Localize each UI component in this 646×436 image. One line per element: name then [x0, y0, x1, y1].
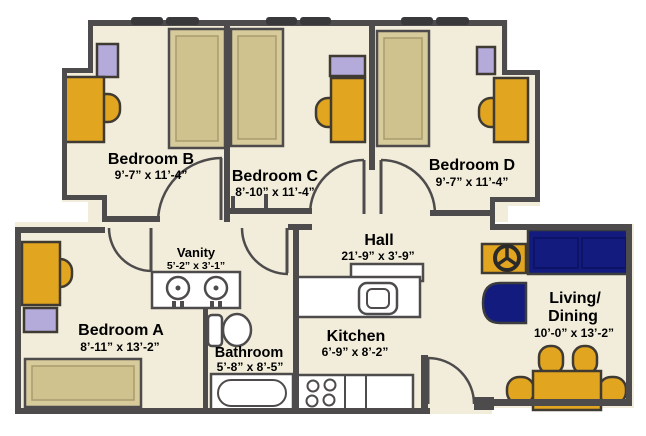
mattress-icon — [238, 36, 276, 139]
desk-icon — [331, 78, 365, 142]
room-dims-bedroom-a: 8’-11” x 13’-2” — [80, 340, 159, 354]
wall-hall-south-stub — [288, 224, 312, 230]
room-dims-living-dining: 10’-0” x 13’-2” — [534, 326, 614, 340]
window-icon — [266, 17, 297, 25]
wall-hall-north — [102, 216, 160, 222]
room-dims-kitchen: 6’-9” x 8’-2” — [322, 345, 389, 359]
room-dims-bedroom-b: 9’-7” x 11’-4” — [115, 168, 188, 182]
desk-icon — [494, 78, 528, 142]
desk-icon — [64, 77, 104, 142]
window-icon — [131, 17, 163, 25]
wall-bedroom-d-bottom — [430, 210, 492, 216]
toilet-tank-icon — [208, 315, 222, 346]
wall-bottom — [15, 408, 430, 414]
room-label-kitchen: Kitchen — [327, 328, 386, 345]
sink-tap — [172, 301, 176, 307]
wall-bath-kitchen — [293, 224, 299, 414]
wall-left — [15, 227, 21, 414]
room-label-living: Living/ — [549, 290, 601, 307]
dresser-icon — [97, 44, 118, 77]
floor-plan-drawing: Bedroom B 9’-7” x 11’-4” Bedroom C 8’-10… — [0, 0, 646, 436]
wall-bedroom-a-top — [15, 227, 105, 233]
room-label-bedroom-a: Bedroom A — [78, 322, 164, 339]
wall — [535, 70, 540, 202]
sink-drain — [214, 286, 219, 291]
kitchen-sink-icon — [359, 283, 397, 314]
sink-tap — [218, 301, 222, 307]
window-icon — [401, 17, 433, 25]
room-label-bathroom: Bathroom — [215, 345, 283, 361]
room-label-bedroom-b: Bedroom B — [108, 151, 194, 168]
room-label-dining: Dining — [548, 308, 598, 325]
wall-living-top — [492, 224, 632, 230]
dresser-icon — [24, 308, 57, 332]
window-icon — [300, 17, 331, 25]
wall-partition-cd — [369, 20, 375, 170]
room-dims-bedroom-d: 9’-7” x 11’-4” — [436, 175, 509, 189]
wall-bedroom-a-bath — [203, 307, 208, 414]
dresser-icon — [330, 56, 365, 76]
desk-icon — [22, 242, 60, 305]
window-icon — [166, 17, 199, 25]
window-icon — [436, 17, 469, 25]
room-label-bedroom-c: Bedroom C — [232, 168, 319, 185]
dresser-icon — [477, 47, 495, 74]
floor-plan-page: Bedroom B 9’-7” x 11’-4” Bedroom C 8’-10… — [0, 0, 646, 436]
room-label-bedroom-d: Bedroom D — [429, 157, 515, 174]
armchair-icon — [483, 283, 526, 323]
sink-tap — [210, 301, 214, 307]
mattress-icon — [384, 38, 422, 139]
room-label-vanity: Vanity — [177, 245, 216, 260]
sink-tap — [180, 301, 184, 307]
room-dims-bedroom-c: 8’-10” x 11’-4” — [235, 185, 314, 199]
wall — [490, 197, 540, 202]
wall-living-bottom — [474, 399, 632, 406]
sink-drain — [176, 286, 181, 291]
toilet-bowl-icon — [223, 314, 251, 346]
room-dims-hall: 21’-9” x 3’-9” — [341, 249, 414, 263]
wall — [502, 20, 507, 75]
wall — [88, 20, 93, 72]
room-label-hall: Hall — [364, 232, 393, 249]
mattress-icon — [32, 366, 134, 400]
room-dims-vanity: 5’-2” x 3’-1” — [167, 260, 225, 272]
mattress-icon — [176, 36, 218, 141]
wall-partition-bc — [224, 20, 230, 222]
wall — [62, 68, 67, 199]
wall — [502, 70, 540, 75]
wall — [62, 195, 107, 200]
wall-living-right — [626, 224, 632, 406]
vanity-fixtures — [152, 272, 240, 308]
room-dims-bathroom: 5’-8” x 8’-5” — [217, 360, 284, 374]
